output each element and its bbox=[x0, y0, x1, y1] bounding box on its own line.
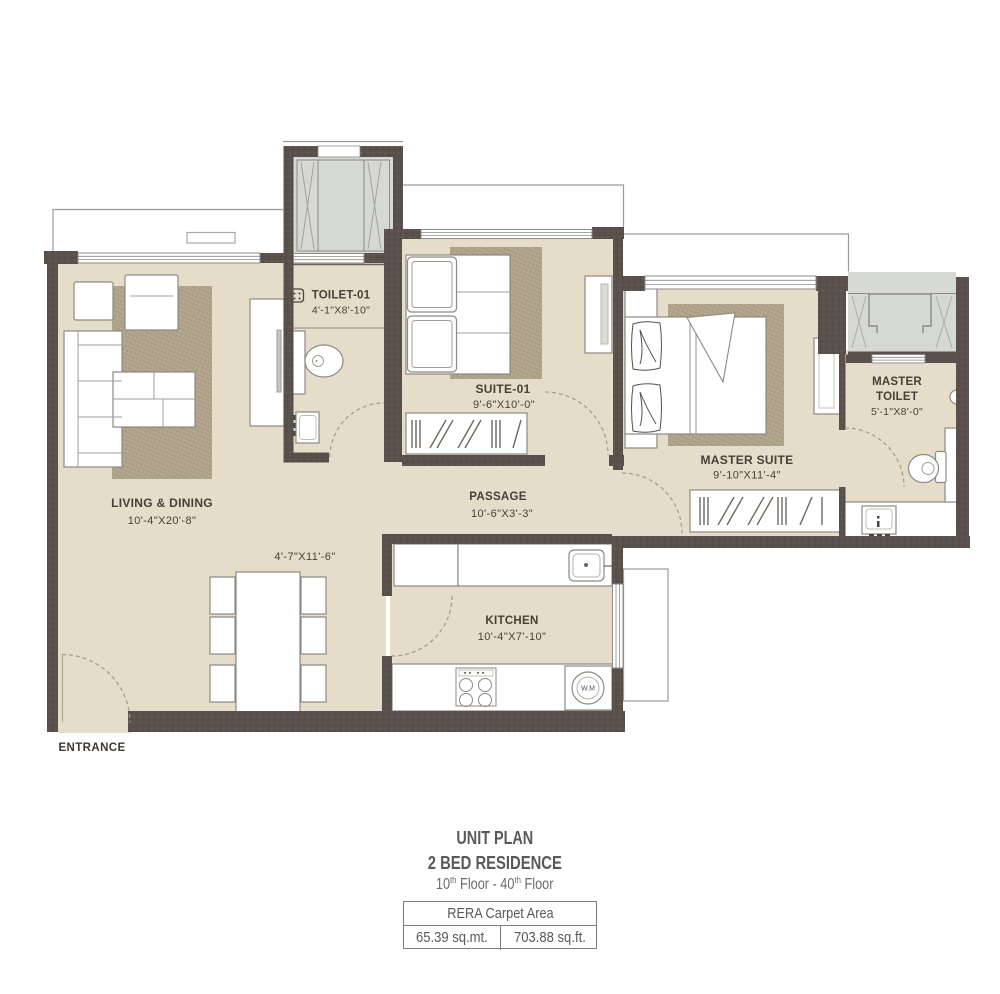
svg-text:5'-1"X8'-0": 5'-1"X8'-0" bbox=[871, 406, 923, 418]
svg-text:10'-4"X20'-8": 10'-4"X20'-8" bbox=[128, 515, 197, 527]
svg-text:MASTER SUITE: MASTER SUITE bbox=[701, 453, 794, 467]
svg-text:MASTER: MASTER bbox=[872, 376, 922, 388]
svg-text:PASSAGE: PASSAGE bbox=[469, 491, 527, 503]
svg-text:9'-10"X11'-4": 9'-10"X11'-4" bbox=[713, 470, 781, 482]
svg-text:TOILET: TOILET bbox=[876, 391, 918, 403]
svg-text:LIVING & DINING: LIVING & DINING bbox=[111, 496, 213, 510]
svg-text:TOILET-01: TOILET-01 bbox=[312, 290, 371, 302]
svg-text:4'-1"X8'-10": 4'-1"X8'-10" bbox=[312, 305, 370, 317]
svg-text:ENTRANCE: ENTRANCE bbox=[58, 742, 125, 754]
svg-text:4'-7"X11'-6": 4'-7"X11'-6" bbox=[274, 551, 335, 563]
svg-text:10'-6"X3'-3": 10'-6"X3'-3" bbox=[471, 508, 533, 520]
svg-text:10'-4"X7'-10": 10'-4"X7'-10" bbox=[478, 631, 547, 643]
svg-text:SUITE-01: SUITE-01 bbox=[475, 382, 530, 396]
svg-text:9'-6"X10'-0": 9'-6"X10'-0" bbox=[473, 399, 535, 411]
svg-text:KITCHEN: KITCHEN bbox=[485, 615, 538, 627]
svg-text:W.M: W.M bbox=[581, 686, 595, 693]
